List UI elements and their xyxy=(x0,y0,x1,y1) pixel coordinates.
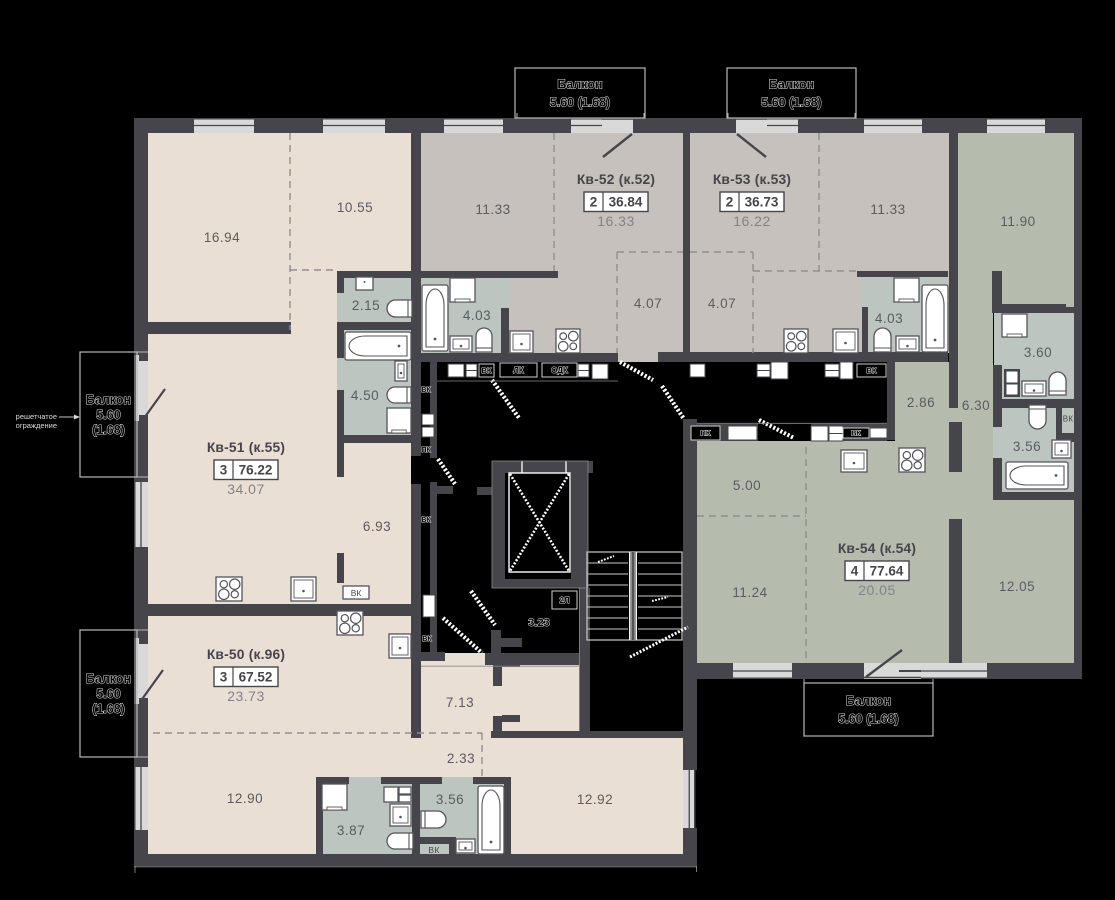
svg-text:11.90: 11.90 xyxy=(1000,214,1035,229)
svg-text:(1.68): (1.68) xyxy=(92,702,125,716)
svg-text:2: 2 xyxy=(590,195,598,210)
svg-text:ВК: ВК xyxy=(482,366,492,375)
svg-text:7.13: 7.13 xyxy=(446,695,474,710)
svg-text:36.84: 36.84 xyxy=(609,195,643,210)
svg-text:5.60: 5.60 xyxy=(96,408,120,422)
svg-text:ограждение: ограждение xyxy=(16,421,57,430)
svg-text:ПК: ПК xyxy=(421,447,431,454)
svg-text:23.73: 23.73 xyxy=(227,688,265,704)
svg-text:4.07: 4.07 xyxy=(708,296,736,311)
svg-text:2.86: 2.86 xyxy=(907,395,935,410)
svg-text:ЛК: ЛК xyxy=(513,366,524,375)
svg-text:11.33: 11.33 xyxy=(870,202,905,217)
svg-text:6.93: 6.93 xyxy=(363,519,391,534)
svg-text:Кв-54 (к.54): Кв-54 (к.54) xyxy=(838,541,916,556)
svg-text:ВК: ВК xyxy=(851,430,861,437)
svg-text:3.56: 3.56 xyxy=(436,792,464,807)
svg-text:2Л: 2Л xyxy=(559,596,569,605)
svg-text:20.05: 20.05 xyxy=(858,582,896,598)
svg-text:Балкон: Балкон xyxy=(86,393,131,407)
svg-text:16.22: 16.22 xyxy=(733,213,771,229)
svg-text:3: 3 xyxy=(220,670,228,685)
svg-text:12.05: 12.05 xyxy=(999,579,1035,594)
svg-text:5.60 (1.68): 5.60 (1.68) xyxy=(838,712,898,726)
svg-text:12.90: 12.90 xyxy=(227,791,263,806)
svg-text:Кв-50 (к.96): Кв-50 (к.96) xyxy=(207,647,285,662)
svg-text:2.15: 2.15 xyxy=(352,298,380,313)
svg-text:3.56: 3.56 xyxy=(1013,439,1041,454)
svg-text:76.22: 76.22 xyxy=(239,463,273,478)
svg-text:34.07: 34.07 xyxy=(227,481,265,497)
svg-text:Кв-51 (к.55): Кв-51 (к.55) xyxy=(207,440,285,455)
svg-text:36.73: 36.73 xyxy=(745,195,779,210)
svg-text:11.24: 11.24 xyxy=(732,585,767,600)
svg-text:ВК: ВК xyxy=(1063,415,1074,424)
svg-text:16.33: 16.33 xyxy=(597,213,635,229)
svg-text:(1.68): (1.68) xyxy=(92,423,125,437)
svg-text:Кв-53 (к.53): Кв-53 (к.53) xyxy=(713,172,791,187)
svg-text:решетчатое: решетчатое xyxy=(16,412,57,421)
svg-text:3.60: 3.60 xyxy=(1024,345,1052,360)
svg-text:Балкон: Балкон xyxy=(86,672,131,686)
svg-text:ВК: ВК xyxy=(428,845,439,855)
svg-text:2.33: 2.33 xyxy=(447,751,475,766)
svg-text:5.60 (1.68): 5.60 (1.68) xyxy=(761,95,821,109)
svg-text:5.60: 5.60 xyxy=(96,687,120,701)
svg-text:5.00: 5.00 xyxy=(733,478,761,493)
svg-text:12.92: 12.92 xyxy=(577,792,613,807)
svg-text:4.50: 4.50 xyxy=(351,388,379,403)
svg-text:Балкон: Балкон xyxy=(846,694,891,708)
svg-text:16.94: 16.94 xyxy=(204,230,240,245)
svg-text:77.64: 77.64 xyxy=(870,564,904,579)
svg-text:ВК: ВК xyxy=(421,387,431,394)
svg-text:Балкон: Балкон xyxy=(769,77,814,91)
svg-text:Кв-52 (к.52): Кв-52 (к.52) xyxy=(577,172,655,187)
svg-text:ВК: ВК xyxy=(421,517,431,524)
svg-text:3.23: 3.23 xyxy=(528,617,549,629)
svg-text:ВК: ВК xyxy=(867,366,877,375)
svg-text:ОДК: ОДК xyxy=(551,366,568,375)
svg-text:11.33: 11.33 xyxy=(475,202,510,217)
svg-text:4.03: 4.03 xyxy=(463,308,491,323)
svg-text:Балкон: Балкон xyxy=(557,77,602,91)
svg-text:ПК: ПК xyxy=(701,429,711,438)
svg-text:4: 4 xyxy=(851,564,859,579)
svg-text:4.07: 4.07 xyxy=(634,296,662,311)
svg-text:5.60 (1.68): 5.60 (1.68) xyxy=(550,95,610,109)
svg-text:ВК: ВК xyxy=(422,636,432,643)
svg-text:6.30: 6.30 xyxy=(962,398,990,413)
svg-text:10.55: 10.55 xyxy=(337,200,373,215)
svg-text:3: 3 xyxy=(220,463,228,478)
svg-text:4.03: 4.03 xyxy=(875,311,903,326)
svg-text:ВК: ВК xyxy=(351,588,362,598)
svg-text:3.87: 3.87 xyxy=(337,823,365,838)
svg-text:2: 2 xyxy=(726,195,734,210)
svg-text:67.52: 67.52 xyxy=(239,670,273,685)
